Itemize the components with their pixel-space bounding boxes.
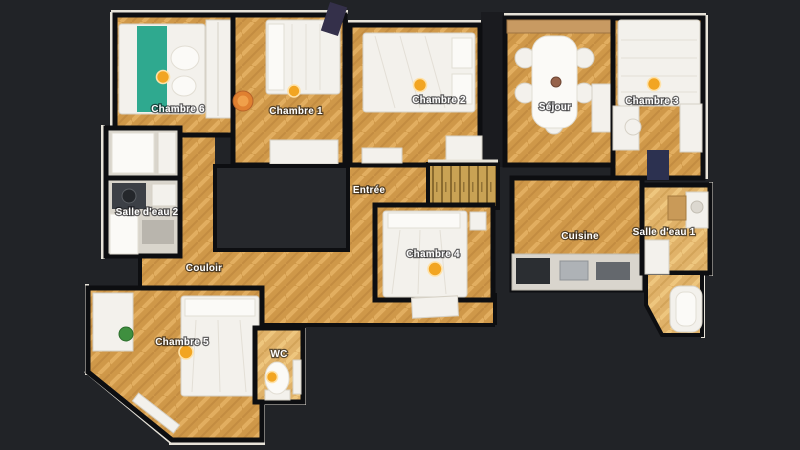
label-chambre-6[interactable]: Chambre 6 [151,104,205,115]
room-sejour[interactable] [505,18,613,165]
bath-mat [142,220,174,244]
shower-tray [112,133,154,173]
bathtub [110,214,138,254]
room-wc[interactable] [255,328,303,402]
floorplan-viewport[interactable]: Chambre 6 Chambre 1 Chambre 2 Séjour Cha… [0,0,800,450]
table-centerpiece [551,77,561,87]
hall-desk [412,296,459,318]
shelf [158,132,176,174]
label-couloir[interactable]: Couloir [186,263,222,274]
dark-passage [481,12,504,167]
stool [625,119,641,135]
pano-marker-chambre-2[interactable] [414,79,427,92]
pillow [388,213,460,228]
basin [691,201,703,213]
label-chambre-5[interactable]: Chambre 5 [155,337,209,348]
sink [560,261,588,280]
pillow [172,76,196,96]
washer-door [122,189,136,203]
room-shower-room[interactable] [106,128,180,178]
staircase [428,161,498,208]
navy-rug [647,150,669,180]
label-sejour[interactable]: Séjour [539,102,571,113]
radiator [293,360,301,394]
label-entree[interactable]: Entrée [353,185,386,196]
teal-blanket [137,26,167,112]
unscanned-void [215,166,348,250]
bathtub-inner [676,292,696,326]
bench [362,148,402,163]
pillow [452,38,472,68]
label-chambre-3[interactable]: Chambre 3 [625,96,679,107]
nightstand [470,212,486,230]
floorplan-canvas[interactable]: Chambre 6 Chambre 1 Chambre 2 Séjour Cha… [0,0,800,450]
shower [645,240,669,274]
label-salle-deau-1[interactable]: Salle d'eau 1 [633,227,696,238]
pillow [171,46,199,70]
label-salle-deau-2[interactable]: Salle d'eau 2 [116,207,179,218]
plant [119,327,133,341]
pano-marker-chambre-6[interactable] [157,71,170,84]
bed-chambre-3 [618,20,700,106]
vanity [152,184,176,206]
pano-marker-chambre-4[interactable] [428,262,442,276]
pano-marker-chambre-1[interactable] [288,85,300,97]
pano-marker-chambre-3[interactable] [648,78,661,91]
room-chambre-6[interactable] [115,15,233,135]
label-wc[interactable]: WC [270,349,287,360]
pillow [185,299,255,316]
label-chambre-1[interactable]: Chambre 1 [269,106,323,117]
cabinet [592,84,612,132]
label-cuisine[interactable]: Cuisine [561,231,599,242]
pano-marker-wc[interactable] [267,372,278,383]
label-chambre-2[interactable]: Chambre 2 [412,95,466,106]
cooktop [516,258,550,284]
sideboard [507,20,611,33]
cabinet [680,104,702,152]
label-chambre-4[interactable]: Chambre 4 [406,249,460,260]
room-salle-deau-1[interactable] [642,185,710,335]
pillow [268,24,284,90]
wooden-box [668,196,686,220]
oven [596,262,630,280]
wardrobe [93,293,133,351]
orange-pouf-top [238,96,249,107]
dresser [270,140,338,164]
